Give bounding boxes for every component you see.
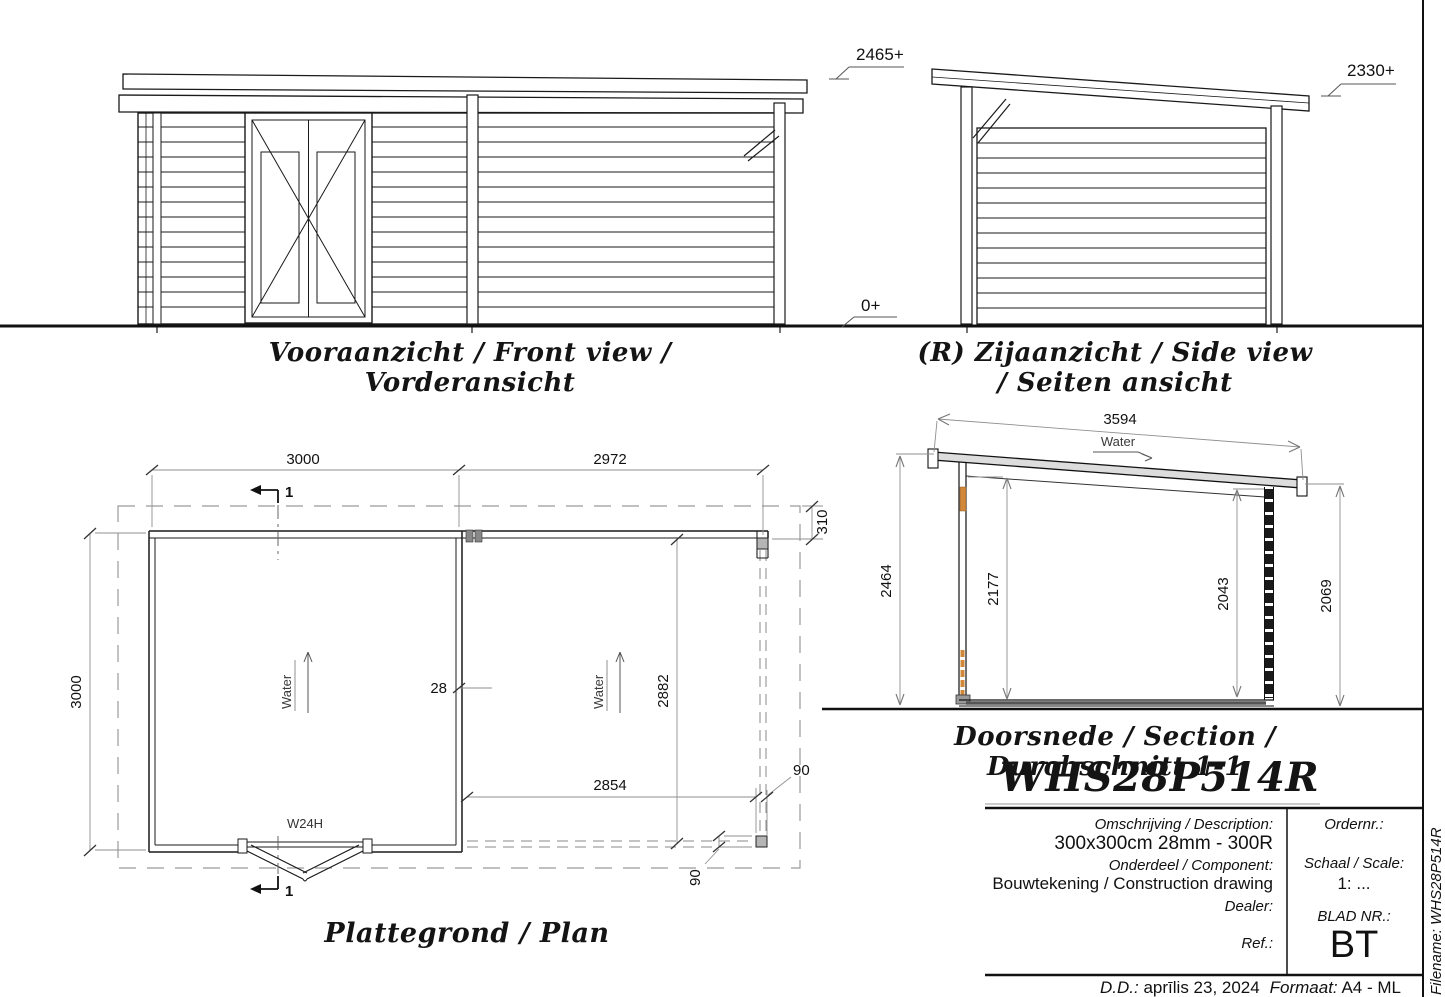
- front-door: [245, 113, 372, 323]
- section-drawing: 3594 2464 2177 2043 2069 Water: [822, 411, 1423, 709]
- title-block-left-cell: Omschrijving / Description: 300x300cm 28…: [985, 810, 1281, 952]
- front-view-title: Vooraanzicht / Front view / Vorderansich…: [185, 338, 755, 398]
- plan-dim-overhang: 310: [814, 509, 831, 534]
- plan-dimensions: 3000 2972 3000 2882 2854 90 90 310 28: [68, 451, 831, 886]
- plan-door-label: W24H: [287, 816, 323, 831]
- side-wall-logs: [977, 128, 1266, 324]
- section-dim-right-outer: 2069: [1318, 579, 1335, 612]
- dealer-label: Dealer:: [985, 898, 1273, 915]
- water-label-plan-left: Water: [279, 674, 294, 709]
- level-marker-ground: 0+: [842, 296, 897, 327]
- section-floor: [959, 700, 1274, 706]
- section-dim-right-inner: 2043: [1215, 577, 1232, 610]
- plan-title: Plattegrond / Plan: [297, 918, 637, 949]
- level-front-top-value: 2465+: [856, 45, 904, 64]
- front-view-drawing: [119, 74, 807, 333]
- section-dim-roof-length: 3594: [1103, 411, 1136, 428]
- front-wall-logs: [138, 113, 783, 324]
- front-roof: [119, 74, 807, 113]
- plan-walls: [149, 531, 768, 852]
- level-marker-front-top: 2465+: [829, 45, 904, 79]
- sheet-number-value: BT: [1289, 925, 1419, 965]
- format-label: Formaat:: [1270, 978, 1338, 997]
- section-left-wall: [956, 462, 970, 704]
- title-block-footer: D.D.: aprīlis 23, 2024 Formaat: A4 - ML: [985, 978, 1423, 997]
- ref-label: Ref.:: [985, 935, 1273, 952]
- format-value: A4 - ML: [1341, 978, 1401, 997]
- level-ground-value: 0+: [861, 296, 880, 315]
- side-roof: [932, 69, 1309, 111]
- water-label-section: Water: [1101, 434, 1136, 449]
- title-block-right-cell: Ordernr.: Schaal / Scale: 1: ... BLAD NR…: [1289, 810, 1419, 965]
- plan-dim-width-right: 2972: [593, 451, 626, 468]
- date-label: D.D.:: [1100, 978, 1139, 997]
- model-number: WHS28P514R: [1000, 754, 1300, 801]
- plan-dim-height-left: 3000: [68, 675, 85, 708]
- side-view-title: (R) Zijaanzicht / Side view / Seiten ans…: [915, 338, 1315, 398]
- order-number-label: Ordernr.:: [1289, 816, 1419, 833]
- description-value: 300x300cm 28mm - 300R: [985, 833, 1273, 855]
- side-view-drawing: [932, 69, 1309, 333]
- section-water-arrow: Water: [1093, 434, 1152, 461]
- date-value: aprīlis 23, 2024: [1143, 978, 1259, 997]
- side-ground-ticks: [967, 327, 1277, 333]
- scale-label: Schaal / Scale:: [1289, 855, 1419, 872]
- plan-dim-post-depth: 90: [687, 869, 704, 886]
- description-label: Omschrijving / Description:: [985, 816, 1273, 833]
- plan-wall-joint-marks: [466, 530, 482, 542]
- section-dim-left-inner: 2177: [985, 572, 1002, 605]
- plan-dim-wall-thickness: 28: [430, 680, 447, 697]
- water-label-plan-right: Water: [591, 674, 606, 709]
- section-roof: [928, 449, 1307, 497]
- level-side-top-value: 2330+: [1347, 61, 1395, 80]
- scale-value: 1: ...: [1289, 874, 1419, 894]
- construction-drawing-page: 2465+ 0+ 2330+ W2: [0, 0, 1445, 997]
- sheet-number-label: BLAD NR.:: [1289, 908, 1419, 925]
- floor-plan-drawing: W24H 3000 2972: [68, 451, 831, 900]
- section-dim-left-outer: 2464: [878, 564, 895, 597]
- plan-dim-porch-width: 2854: [593, 777, 626, 794]
- section-right-wall: [1265, 487, 1274, 700]
- plan-roof-outline-dashed: [118, 506, 800, 868]
- plan-dim-width-left: 3000: [286, 451, 319, 468]
- format-group: Formaat: A4 - ML: [1270, 978, 1401, 997]
- plan-water-arrow-right: Water: [591, 652, 624, 713]
- front-ground-ticks: [157, 327, 780, 333]
- level-marker-side-top: 2330+: [1321, 61, 1396, 96]
- section-mark-top-label: 1: [285, 484, 293, 501]
- plan-dim-height-inner: 2882: [655, 674, 672, 707]
- plan-water-arrow-left: Water: [279, 652, 312, 713]
- component-value: Bouwtekening / Construction drawing: [985, 874, 1273, 894]
- plan-double-door: [238, 839, 372, 881]
- plan-hidden-beams-dashed: [467, 550, 766, 847]
- plan-section-marker-top: 1: [250, 484, 293, 560]
- filename-vertical-label: Filename: WHS28P514R: [1428, 787, 1445, 995]
- section-door-frame-orange: [960, 487, 966, 511]
- component-label: Onderdeel / Component:: [985, 857, 1273, 874]
- section-mark-bottom-label: 1: [285, 883, 293, 900]
- date-group: D.D.: aprīlis 23, 2024: [1100, 978, 1260, 997]
- plan-dim-post-width: 90: [793, 762, 810, 779]
